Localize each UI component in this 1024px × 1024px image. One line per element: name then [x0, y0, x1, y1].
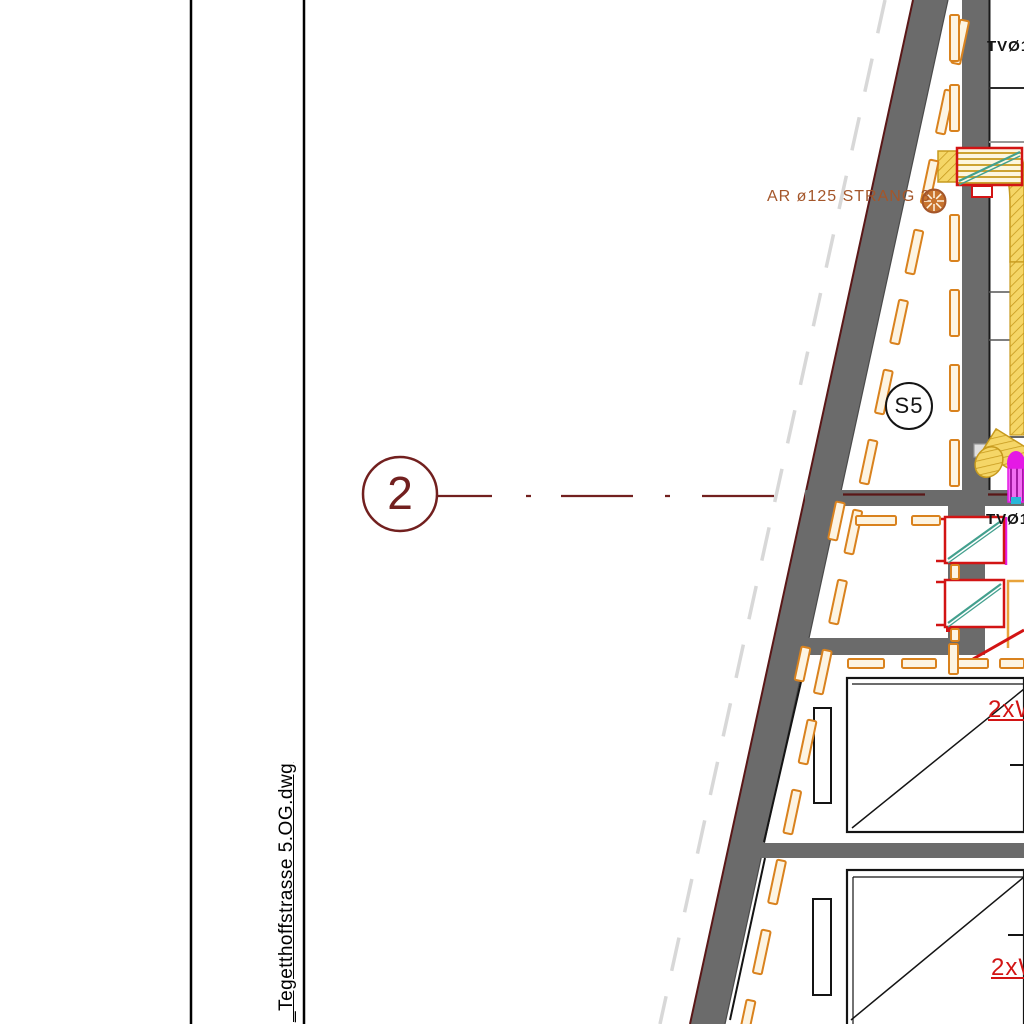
shaft-bubble-label: S5 — [886, 393, 932, 419]
cad-viewport[interactable]: TVØ1 AR ø125 STRANG 3 2 S5 TVØ1 2xW 2xW … — [0, 0, 1024, 1024]
drawing-filename-label: _Tegetthoffstrasse 5.OG.dwg — [276, 763, 298, 1022]
shaft-wall-pier-1 — [948, 506, 985, 517]
window-label-lower: 2xW — [991, 954, 1024, 982]
right-shaft-wall — [962, 0, 990, 492]
riser-label-top: TVØ1 — [987, 38, 1024, 55]
window-label-upper: 2xW — [988, 696, 1024, 724]
fire-damper-mid-2 — [936, 580, 1004, 632]
duct-stub-left — [938, 151, 958, 182]
grid-bubble-label: 2 — [363, 466, 437, 520]
magenta-riser — [1006, 451, 1024, 565]
floorplan-canvas — [0, 0, 1024, 1024]
duct-vertical-run — [1010, 262, 1024, 435]
riser-label-mid: TVØ1 — [986, 511, 1024, 528]
corridor-wall-lower — [740, 843, 1024, 858]
duct-run-label: AR ø125 STRANG 3 — [767, 188, 931, 206]
